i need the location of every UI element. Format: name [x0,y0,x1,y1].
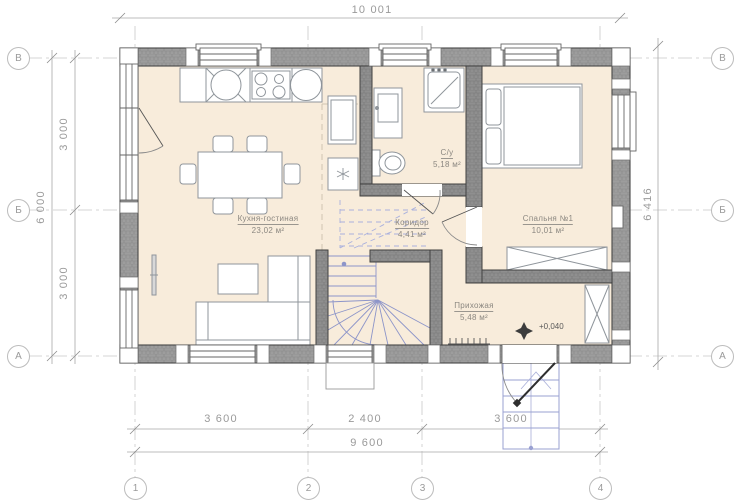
window-door-living-left [120,64,138,200]
window-bathroom-top [379,44,431,66]
floor-plan-page: 10 001 3 000 3 000 6 000 6 416 3 600 2 4… [0,0,746,502]
fridge [328,96,356,144]
window-bedroom-top [501,44,561,66]
washing-machine [328,158,358,190]
door-opening-bedroom [466,207,482,247]
kitchen-bowl-sink [291,70,322,101]
shower [424,68,464,112]
floor-plan-drawing [0,0,746,502]
stove [252,71,290,99]
entry-porch-steps [503,363,559,450]
window-kitchen-top [196,44,261,66]
wall-vent [612,206,623,228]
bed [482,84,582,168]
toilet [372,150,405,176]
window-living-left-lower [120,290,138,348]
window-bedroom-right [612,92,636,151]
window-living-bottom [190,345,255,363]
bathroom-vanity [374,88,402,138]
door-opening-bathroom [402,184,442,196]
dining-table [198,152,282,198]
door-opening-entry [502,345,557,363]
entry-wardrobe [585,285,609,343]
bedroom-wardrobe [507,247,607,270]
coffee-table [218,264,258,294]
window-stairs-bottom [326,345,374,389]
